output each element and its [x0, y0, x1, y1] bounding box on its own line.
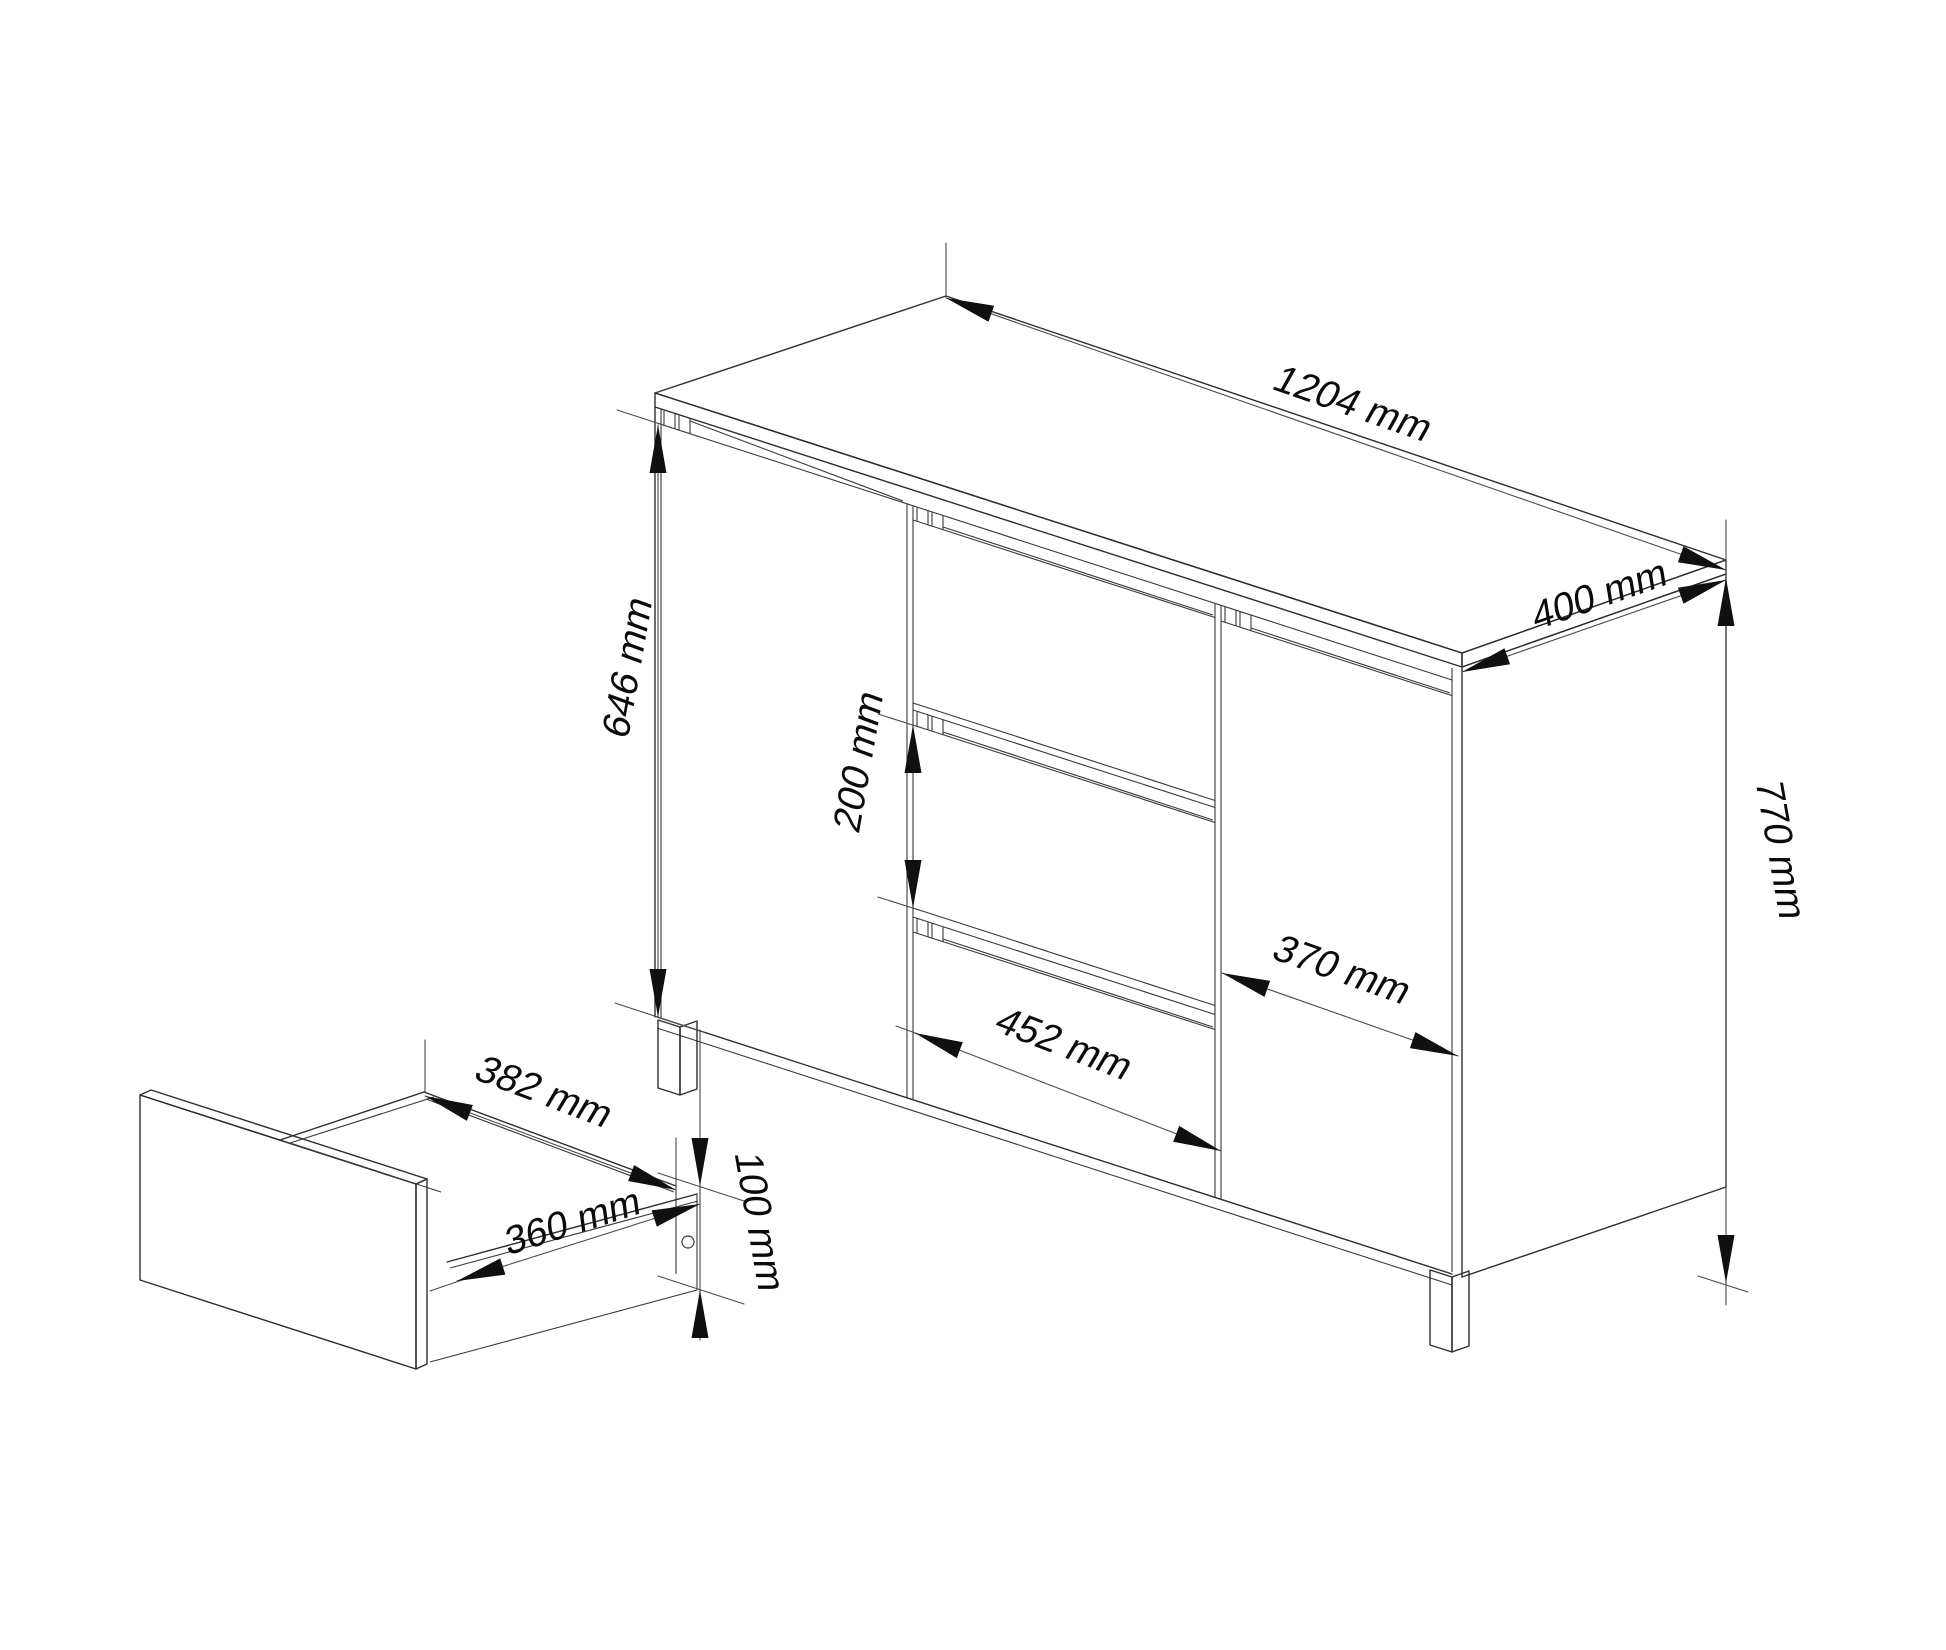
right-door	[1221, 607, 1452, 696]
carcass-top-edge	[657, 423, 1452, 680]
dimension-diagram-page: 1204 mm 400 mm 646 mm 200 mm 452 mm	[0, 0, 1946, 1650]
screw-hole	[682, 1236, 694, 1248]
dim-door-height: 646 mm	[594, 410, 703, 1032]
drawer-column-dividers	[907, 504, 1221, 1199]
dim-label-cabinet-width: 1204 mm	[1266, 358, 1441, 450]
dim-label-door-height: 646 mm	[594, 590, 660, 744]
cabinet-legs	[658, 1020, 1469, 1352]
dim-cabinet-depth: 400 mm	[1462, 549, 1726, 672]
dim-label-drawer-side-height: 100 mm	[725, 1153, 794, 1292]
left-door	[664, 410, 903, 501]
dim-label-drawer-inner-depth: 360 mm	[503, 1178, 643, 1265]
dim-label-total-height: 770 mm	[1746, 781, 1815, 920]
dim-drawer-inner-width: 382 mm	[425, 1040, 676, 1190]
drawer-stack	[913, 507, 1215, 1030]
dim-label-cabinet-depth: 400 mm	[1530, 549, 1670, 639]
dim-right-door-width: 370 mm	[1222, 927, 1458, 1056]
cabinet	[655, 296, 1726, 1352]
dim-drawer-side-height: 100 mm	[658, 1030, 794, 1340]
drawer-front-panel	[140, 1095, 416, 1369]
dim-total-height: 770 mm	[1698, 520, 1815, 1305]
dim-drawer-column-width: 452 mm	[896, 999, 1221, 1151]
dim-label-drawer-inner-width: 382 mm	[467, 1048, 621, 1136]
dim-label-drawer-front-height: 200 mm	[825, 684, 891, 838]
dim-label-drawer-column-width: 452 mm	[987, 999, 1141, 1087]
furniture-dimension-diagram: 1204 mm 400 mm 646 mm 200 mm 452 mm	[0, 0, 1946, 1650]
side-bottom-edge	[1462, 1187, 1726, 1277]
dim-label-right-door-width: 370 mm	[1265, 927, 1420, 1012]
dim-drawer-inner-depth: 360 mm	[430, 1178, 700, 1291]
